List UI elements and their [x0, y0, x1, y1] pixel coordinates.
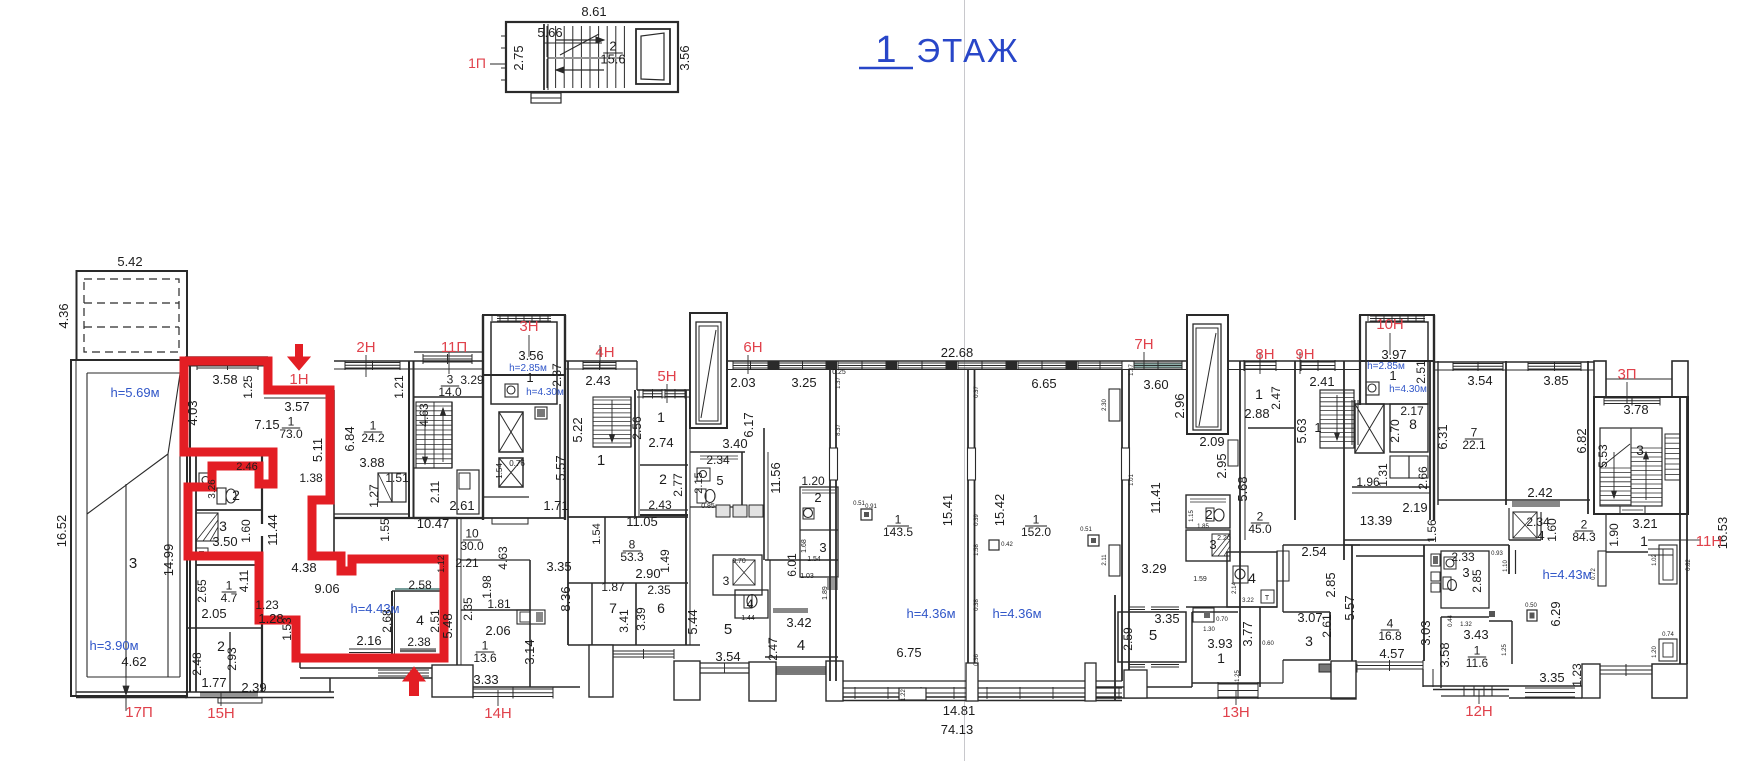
svg-text:1.38: 1.38	[299, 471, 323, 485]
svg-text:2.11: 2.11	[1102, 554, 1108, 566]
svg-text:h=4.43м: h=4.43м	[1542, 567, 1591, 582]
svg-text:2.61: 2.61	[1320, 614, 1334, 638]
svg-text:6.84: 6.84	[342, 426, 357, 451]
svg-text:2.47: 2.47	[766, 637, 780, 661]
svg-text:0.91: 0.91	[865, 504, 877, 510]
svg-text:3.57: 3.57	[284, 399, 309, 414]
svg-text:15Н: 15Н	[207, 705, 235, 722]
svg-text:3Н: 3Н	[519, 318, 538, 335]
svg-text:10Н: 10Н	[1376, 316, 1404, 333]
svg-text:0.70: 0.70	[1216, 617, 1228, 623]
svg-text:3.54: 3.54	[1467, 373, 1492, 388]
svg-text:3.54: 3.54	[715, 649, 740, 664]
svg-text:1: 1	[1389, 368, 1396, 383]
svg-text:74.13: 74.13	[941, 722, 974, 737]
svg-text:1: 1	[1314, 420, 1321, 435]
svg-text:3.22: 3.22	[1242, 598, 1254, 604]
svg-text:1.37: 1.37	[1129, 364, 1135, 376]
svg-text:1.56: 1.56	[1425, 519, 1439, 543]
svg-text:1.25: 1.25	[1235, 670, 1241, 682]
svg-text:3.25: 3.25	[791, 375, 816, 390]
svg-text:3.77: 3.77	[1240, 621, 1255, 646]
svg-text:3.88: 3.88	[359, 455, 384, 470]
svg-text:1.23: 1.23	[255, 598, 279, 612]
svg-text:2.65: 2.65	[195, 579, 209, 603]
svg-text:9Н: 9Н	[1295, 346, 1314, 363]
svg-text:3.93: 3.93	[1207, 636, 1232, 651]
svg-text:2.51: 2.51	[1414, 360, 1428, 384]
svg-text:2.59: 2.59	[1121, 627, 1135, 651]
svg-text:3.42: 3.42	[786, 615, 811, 630]
svg-text:11.05: 11.05	[626, 514, 658, 529]
svg-text:3.35: 3.35	[1539, 670, 1564, 685]
svg-text:4.63: 4.63	[496, 546, 510, 570]
svg-text:2: 2	[659, 471, 667, 487]
svg-text:2: 2	[814, 490, 821, 505]
svg-text:8.61: 8.61	[581, 4, 606, 19]
svg-text:2Н: 2Н	[356, 339, 375, 356]
svg-text:2.35: 2.35	[647, 583, 671, 597]
svg-text:15.41: 15.41	[940, 494, 955, 527]
svg-text:1.60: 1.60	[1545, 518, 1559, 542]
svg-text:11.44: 11.44	[265, 514, 280, 546]
svg-text:1.10: 1.10	[1503, 560, 1509, 572]
svg-text:5.48: 5.48	[440, 613, 455, 638]
svg-text:11П: 11П	[441, 339, 467, 356]
svg-text:143.5: 143.5	[883, 525, 913, 539]
svg-text:1.90: 1.90	[1607, 523, 1621, 547]
svg-text:5.63: 5.63	[1294, 418, 1309, 443]
svg-text:3.58: 3.58	[1437, 642, 1452, 667]
svg-text:3: 3	[1636, 442, 1644, 458]
svg-text:1.68: 1.68	[801, 539, 808, 553]
svg-text:2.35: 2.35	[461, 597, 475, 621]
svg-text:5: 5	[716, 473, 723, 488]
svg-text:1.87: 1.87	[601, 580, 625, 594]
svg-text:6.31: 6.31	[1435, 424, 1450, 449]
svg-text:2.15: 2.15	[693, 472, 705, 493]
svg-text:ЭТАЖ: ЭТАЖ	[916, 32, 1019, 69]
svg-text:0.50: 0.50	[1525, 603, 1537, 609]
svg-text:4.38: 4.38	[291, 560, 316, 575]
svg-text:4: 4	[1537, 528, 1544, 543]
svg-text:3: 3	[129, 555, 137, 572]
svg-text:4.11: 4.11	[237, 569, 251, 592]
svg-text:1.44: 1.44	[741, 615, 755, 622]
svg-text:1.60: 1.60	[239, 519, 253, 543]
svg-text:3.41: 3.41	[617, 609, 631, 633]
svg-text:1.59: 1.59	[1193, 576, 1207, 583]
svg-text:2.46: 2.46	[236, 461, 257, 473]
svg-text:2.16: 2.16	[356, 633, 381, 648]
svg-text:0.36: 0.36	[974, 654, 980, 666]
svg-text:0.51: 0.51	[853, 501, 865, 507]
svg-text:2.2б: 2.2б	[1217, 534, 1231, 542]
svg-text:3.56: 3.56	[518, 348, 543, 363]
svg-text:2.43: 2.43	[648, 498, 672, 512]
svg-text:1.85: 1.85	[1197, 524, 1209, 530]
svg-text:0.72: 0.72	[1591, 568, 1597, 580]
svg-text:3.07: 3.07	[1297, 610, 1322, 625]
svg-text:2.47: 2.47	[1269, 386, 1283, 410]
svg-text:1: 1	[1255, 386, 1263, 402]
svg-text:1.03: 1.03	[800, 573, 814, 580]
svg-text:1.02: 1.02	[1652, 554, 1658, 566]
svg-text:2.19: 2.19	[1402, 500, 1427, 515]
svg-text:13Н: 13Н	[1222, 704, 1250, 721]
svg-text:0.82: 0.82	[1686, 559, 1692, 571]
svg-text:4: 4	[416, 612, 424, 628]
svg-text:10.47: 10.47	[417, 516, 450, 531]
svg-text:2.66: 2.66	[1416, 466, 1430, 490]
svg-text:4.57: 4.57	[1379, 646, 1404, 661]
svg-text:1.53: 1.53	[280, 617, 294, 641]
svg-text:4: 4	[797, 637, 805, 654]
svg-text:17П: 17П	[125, 704, 152, 721]
svg-text:2.85: 2.85	[1470, 569, 1484, 593]
svg-text:1.54: 1.54	[591, 523, 603, 544]
svg-text:6Н: 6Н	[743, 339, 762, 356]
svg-text:2.38: 2.38	[407, 635, 431, 649]
svg-text:1.15: 1.15	[1189, 510, 1195, 522]
svg-text:3.58: 3.58	[212, 372, 237, 387]
svg-text:1.58: 1.58	[974, 544, 980, 556]
svg-text:1: 1	[1640, 533, 1648, 549]
svg-text:11Н: 11Н	[1696, 533, 1722, 550]
svg-text:2.48: 2.48	[190, 652, 204, 676]
svg-text:2.93: 2.93	[225, 647, 239, 671]
svg-text:3.14: 3.14	[522, 639, 537, 664]
svg-text:4.03: 4.03	[185, 400, 200, 425]
svg-text:1.27: 1.27	[367, 484, 381, 508]
svg-text:0.51: 0.51	[1080, 527, 1092, 533]
svg-text:2.30: 2.30	[1102, 399, 1108, 411]
svg-text:1.54: 1.54	[807, 556, 821, 563]
svg-text:h=4.30м: h=4.30м	[1389, 384, 1427, 395]
svg-text:3.29: 3.29	[1141, 561, 1166, 576]
svg-text:2: 2	[1205, 507, 1212, 522]
svg-text:8Н: 8Н	[1255, 346, 1274, 363]
svg-text:1.51: 1.51	[385, 471, 409, 485]
svg-text:1.22: 1.22	[901, 689, 907, 701]
svg-text:1: 1	[875, 29, 896, 71]
svg-text:11.56: 11.56	[768, 462, 783, 494]
svg-text:2.95: 2.95	[1214, 453, 1229, 478]
svg-text:0.25: 0.25	[832, 369, 846, 376]
svg-text:4.62: 4.62	[121, 654, 146, 669]
svg-text:12Н: 12Н	[1465, 703, 1493, 720]
svg-text:9.06: 9.06	[314, 581, 339, 596]
svg-text:1.12: 1.12	[436, 555, 446, 573]
svg-text:5.57: 5.57	[1342, 595, 1357, 620]
svg-text:1.37: 1.37	[836, 377, 842, 389]
svg-text:2.70: 2.70	[1388, 419, 1402, 443]
svg-text:2.33: 2.33	[1451, 550, 1475, 564]
svg-text:3: 3	[1305, 633, 1313, 649]
svg-text:13.6: 13.6	[473, 651, 497, 665]
svg-text:14Н: 14Н	[484, 705, 512, 722]
svg-text:0.44: 0.44	[1448, 615, 1454, 627]
svg-text:16.8: 16.8	[1378, 629, 1402, 643]
svg-text:1.89: 1.89	[822, 586, 829, 600]
svg-text:2.43: 2.43	[585, 373, 610, 388]
svg-text:Т: Т	[1265, 595, 1270, 602]
svg-text:7.15: 7.15	[254, 417, 279, 432]
svg-text:3.85: 3.85	[1543, 373, 1568, 388]
svg-text:2.56: 2.56	[630, 416, 644, 440]
svg-text:2.37: 2.37	[550, 363, 564, 387]
svg-text:5: 5	[1149, 627, 1157, 644]
svg-text:6: 6	[657, 600, 665, 616]
svg-text:1: 1	[1217, 650, 1225, 666]
svg-text:1.31: 1.31	[1376, 463, 1390, 487]
svg-text:3.35: 3.35	[546, 559, 571, 574]
svg-text:2.05: 2.05	[201, 606, 226, 621]
svg-text:2.75: 2.75	[511, 45, 526, 70]
svg-text:2.21: 2.21	[455, 556, 479, 570]
svg-text:2.85: 2.85	[1323, 572, 1338, 597]
svg-text:5.57: 5.57	[553, 455, 568, 480]
svg-text:1.55: 1.55	[378, 518, 392, 542]
svg-text:53.3: 53.3	[620, 550, 644, 564]
svg-text:2.39: 2.39	[241, 680, 266, 695]
svg-text:0.93: 0.93	[1491, 551, 1503, 557]
svg-text:14.99: 14.99	[161, 544, 176, 577]
svg-text:3.56: 3.56	[677, 45, 692, 70]
svg-text:1.21: 1.21	[392, 375, 406, 399]
svg-text:0.85: 0.85	[701, 503, 715, 510]
svg-text:8.37: 8.37	[836, 424, 842, 436]
svg-text:45.0: 45.0	[1248, 522, 1272, 536]
svg-text:1.01: 1.01	[1129, 474, 1135, 486]
svg-text:3: 3	[819, 540, 826, 555]
svg-text:5.68: 5.68	[1235, 476, 1250, 501]
svg-text:2.41: 2.41	[1309, 374, 1334, 389]
svg-text:2: 2	[232, 487, 240, 503]
svg-text:1.30: 1.30	[1203, 627, 1215, 633]
svg-text:0.38: 0.38	[974, 599, 980, 611]
svg-text:2.74: 2.74	[648, 435, 673, 450]
svg-text:7: 7	[609, 600, 617, 616]
svg-text:1.54: 1.54	[495, 463, 504, 479]
svg-text:1: 1	[657, 409, 665, 425]
svg-text:152.0: 152.0	[1021, 525, 1051, 539]
svg-text:1.20: 1.20	[1652, 646, 1658, 658]
svg-text:3.03: 3.03	[1418, 620, 1433, 645]
svg-text:1.25: 1.25	[1502, 644, 1508, 656]
svg-text:1: 1	[597, 452, 605, 469]
svg-text:15.42: 15.42	[992, 494, 1007, 527]
svg-text:5.11: 5.11	[310, 438, 325, 462]
svg-text:1Н: 1Н	[289, 371, 308, 388]
svg-text:5.42: 5.42	[117, 254, 142, 269]
svg-text:2.03: 2.03	[730, 375, 755, 390]
svg-text:14.81: 14.81	[943, 703, 976, 718]
svg-text:1.32: 1.32	[1460, 622, 1472, 628]
svg-text:2.09: 2.09	[1199, 434, 1224, 449]
svg-text:3П: 3П	[1617, 366, 1636, 383]
svg-text:h=4.36м: h=4.36м	[906, 606, 955, 621]
svg-text:2.96: 2.96	[1172, 393, 1187, 418]
svg-text:4Н: 4Н	[595, 344, 614, 361]
svg-text:2.68: 2.68	[380, 609, 394, 633]
svg-text:4.36: 4.36	[56, 303, 71, 328]
svg-text:3.97: 3.97	[1381, 347, 1406, 362]
svg-text:4.7: 4.7	[221, 591, 238, 605]
svg-text:11.41: 11.41	[1148, 482, 1163, 514]
svg-text:1.23: 1.23	[1570, 663, 1584, 687]
svg-text:3.39: 3.39	[634, 607, 648, 631]
svg-text:3.50: 3.50	[212, 534, 237, 549]
svg-text:3.26: 3.26	[207, 479, 218, 499]
svg-text:84.3: 84.3	[1572, 530, 1596, 544]
svg-text:2.11: 2.11	[428, 480, 442, 503]
svg-text:3.33: 3.33	[473, 672, 498, 687]
svg-text:3.35: 3.35	[1154, 611, 1179, 626]
svg-text:4: 4	[747, 597, 754, 611]
svg-text:3: 3	[723, 574, 730, 588]
svg-text:6.01: 6.01	[785, 553, 799, 577]
svg-text:6.29: 6.29	[1548, 601, 1563, 626]
svg-text:6.82: 6.82	[1574, 428, 1589, 453]
svg-text:5: 5	[724, 621, 732, 638]
svg-text:2.06: 2.06	[485, 623, 510, 638]
svg-text:1.77: 1.77	[201, 675, 226, 690]
svg-text:h=5.69м: h=5.69м	[110, 385, 159, 400]
svg-text:3.21: 3.21	[1632, 516, 1657, 531]
svg-text:6.75: 6.75	[896, 645, 921, 660]
svg-text:1.71: 1.71	[543, 498, 568, 513]
svg-text:1.81: 1.81	[487, 597, 511, 611]
svg-text:3: 3	[1209, 537, 1216, 552]
svg-text:0.37: 0.37	[974, 386, 980, 398]
svg-text:0.76: 0.76	[509, 459, 525, 468]
svg-text:2.77: 2.77	[671, 473, 685, 497]
svg-text:3.43: 3.43	[1463, 627, 1488, 642]
svg-text:1.20: 1.20	[801, 474, 825, 488]
svg-text:1.98: 1.98	[480, 575, 494, 599]
svg-text:1П: 1П	[468, 55, 486, 71]
svg-text:5.66: 5.66	[537, 25, 562, 40]
svg-text:5.53: 5.53	[1596, 444, 1610, 468]
svg-text:15.6: 15.6	[600, 52, 625, 67]
svg-text:2.90: 2.90	[635, 566, 660, 581]
svg-text:2.58: 2.58	[408, 578, 432, 592]
svg-text:5.44: 5.44	[685, 609, 700, 634]
svg-text:0.39: 0.39	[974, 514, 980, 526]
svg-text:h=2.85м: h=2.85м	[1367, 361, 1405, 372]
svg-text:24.2: 24.2	[361, 431, 385, 445]
svg-text:5.22: 5.22	[570, 417, 585, 442]
svg-text:6.17: 6.17	[741, 412, 756, 437]
svg-text:0.60: 0.60	[1262, 641, 1274, 647]
svg-text:h=4.30м: h=4.30м	[526, 387, 564, 398]
svg-text:30.0: 30.0	[460, 539, 484, 553]
svg-text:0.70: 0.70	[732, 558, 746, 565]
svg-text:22.1: 22.1	[1462, 438, 1486, 452]
svg-text:22.68: 22.68	[941, 345, 974, 360]
svg-text:0.42: 0.42	[1001, 542, 1013, 548]
svg-text:11.6: 11.6	[1466, 656, 1489, 670]
svg-text:16.52: 16.52	[54, 515, 69, 548]
svg-text:2.42: 2.42	[1527, 485, 1552, 500]
svg-text:2: 2	[217, 638, 225, 654]
svg-text:14.0: 14.0	[438, 385, 462, 399]
svg-text:1: 1	[526, 370, 533, 385]
svg-text:8.36: 8.36	[558, 586, 573, 611]
svg-text:5Н: 5Н	[657, 368, 676, 385]
svg-text:3.78: 3.78	[1623, 402, 1648, 417]
svg-text:4.63: 4.63	[417, 403, 431, 427]
svg-text:2.34: 2.34	[706, 453, 730, 467]
svg-text:h=3.90м: h=3.90м	[89, 638, 138, 653]
svg-text:1.25: 1.25	[241, 375, 255, 399]
svg-text:3.60: 3.60	[1143, 377, 1168, 392]
svg-text:13.39: 13.39	[1360, 513, 1393, 528]
svg-text:8: 8	[1409, 416, 1417, 432]
svg-text:2.61: 2.61	[449, 498, 474, 513]
svg-text:0.74: 0.74	[1662, 632, 1674, 638]
svg-text:3.29: 3.29	[460, 373, 484, 387]
svg-text:4: 4	[1248, 570, 1256, 586]
svg-text:3: 3	[1462, 565, 1469, 580]
svg-text:7Н: 7Н	[1134, 336, 1153, 353]
svg-text:73.0: 73.0	[279, 427, 303, 441]
svg-text:3: 3	[219, 518, 227, 534]
svg-text:2.14: 2.14	[1232, 582, 1238, 594]
svg-text:6.65: 6.65	[1031, 376, 1056, 391]
svg-text:h=4.36м: h=4.36м	[992, 606, 1041, 621]
svg-text:2.54: 2.54	[1301, 544, 1326, 559]
svg-text:2.88: 2.88	[1244, 406, 1269, 421]
